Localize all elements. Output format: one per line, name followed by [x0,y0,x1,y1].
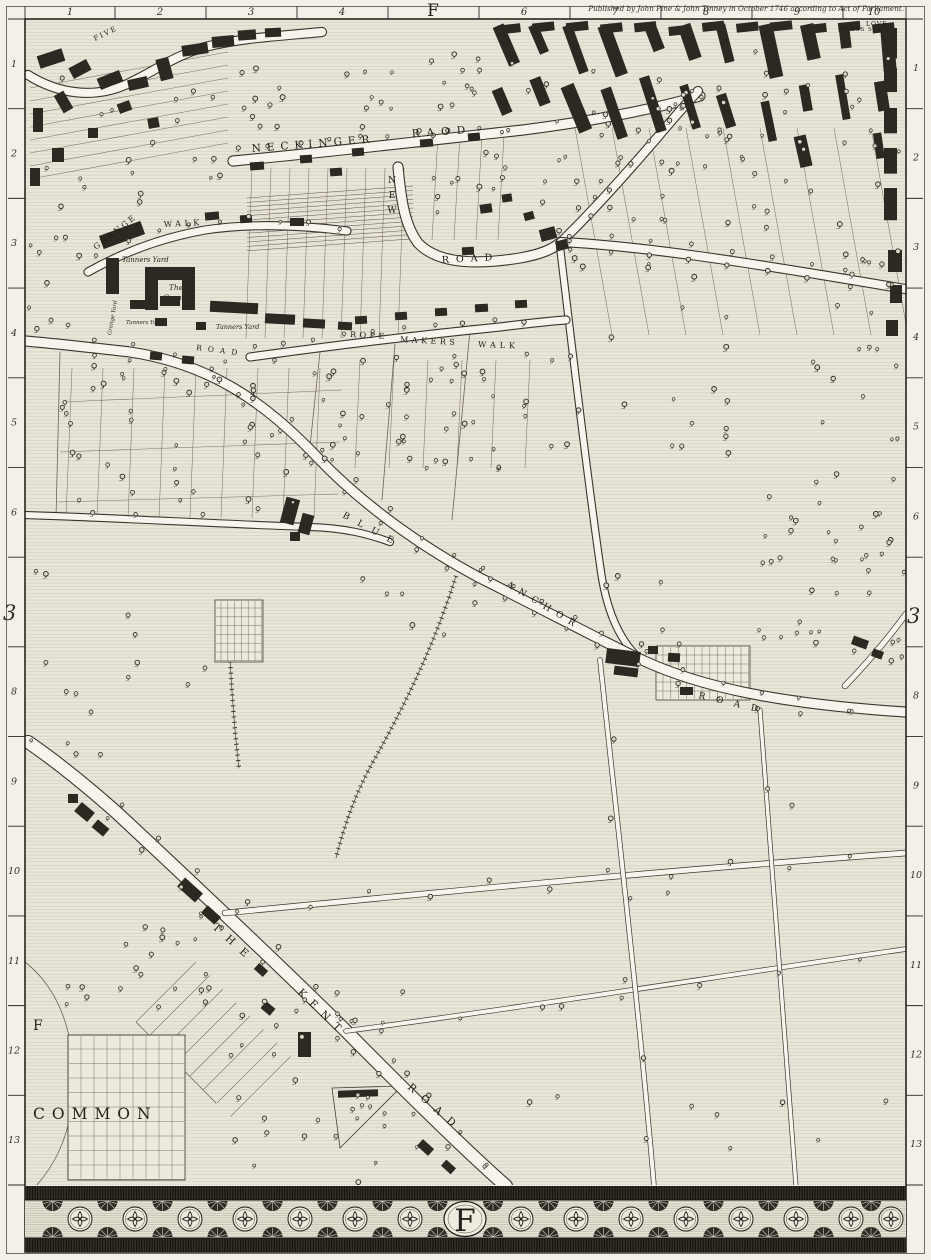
ruler-number: 11 [910,960,922,971]
ruler-number: 2 [912,153,919,164]
building [238,29,257,40]
building [212,35,235,48]
building [668,653,680,663]
rosette-ornament [343,1207,367,1231]
building [648,646,658,654]
rosette-ornament [178,1207,202,1231]
building [886,320,898,336]
rosette-ornament [564,1207,588,1231]
ruler-number: F [427,1,439,21]
ruler-number: 4 [10,328,17,339]
building [395,312,407,321]
building [250,162,265,171]
rosette-ornament [619,1207,643,1231]
section-number-right: 3 [907,604,920,628]
ruler-number: 5 [11,418,17,429]
building [479,203,492,214]
sheet-corner-letter: F [33,1018,43,1034]
building [88,128,98,138]
building [196,322,206,330]
label-the-grange-1: The [169,283,184,292]
ruler-number: 1 [913,63,919,74]
building [501,193,512,202]
label-the-grange-2: Grange [163,293,192,302]
rosette-ornament [68,1207,92,1231]
building [884,148,897,174]
building [420,138,434,147]
building [355,316,367,325]
ruler-number: 1 [11,59,17,70]
rosette-ornament [879,1207,903,1231]
rosette-ornament [288,1207,312,1231]
border-center-letter: F [454,1203,476,1239]
building [303,318,325,328]
building [205,211,220,220]
ruler-number: 8 [11,687,17,698]
ruler-number: 2 [156,7,163,18]
building [265,313,295,325]
building [884,188,897,220]
ruler-number: 6 [11,507,17,518]
ornamental-border: F [25,1186,906,1252]
ruler-number: 6 [913,511,919,522]
building [890,285,902,303]
map-canvas: NECKINGER RAOD NEW ROAD ROPE MAKERS WALK… [0,0,931,1260]
label-tanners-yard-2: Tanners Yard [126,320,163,326]
ruler-number: 3 [248,7,254,18]
building [265,28,281,38]
ruler-number: 13 [910,1139,922,1150]
rosette-ornament [839,1207,863,1231]
section-number-left: 3 [3,601,16,625]
ruler-number: 4 [912,332,919,343]
building [290,532,300,541]
garden-plot [215,600,263,662]
ruler-number: 13 [8,1135,20,1146]
ruler-number: 11 [8,956,20,967]
building [147,117,160,129]
building [33,108,43,132]
rosette-ornament [398,1207,422,1231]
label-new-road-vertical: NEW [387,176,397,221]
ruler-number: 1 [67,7,73,18]
building [330,168,343,177]
ruler-number: 10 [910,870,922,881]
building [150,351,163,360]
ruler-number: 12 [910,1049,922,1060]
building [130,300,146,309]
building [435,308,447,317]
building [145,267,158,310]
ruler-number: 9 [11,776,17,787]
map-sheet: NECKINGER RAOD NEW ROAD ROPE MAKERS WALK… [0,0,931,1260]
ruler-number: 12 [8,1045,20,1056]
rosette-ornament [674,1207,698,1231]
building [106,258,119,294]
publication-note: Published by John Pine & John Tinney in … [587,4,904,13]
building [884,68,897,92]
ruler-number: 8 [913,691,919,702]
building [182,355,195,364]
ruler-number: 4 [338,7,345,18]
ruler-number: 9 [913,780,919,791]
rosette-ornament [729,1207,753,1231]
ruler-number: 10 [8,866,20,877]
building [475,304,488,313]
building [884,28,897,58]
ruler-number: 5 [913,422,919,433]
label-love-lane: LOVE [866,21,888,28]
building [884,108,897,133]
label-tanners-yard-3: Tanners Yard [216,323,259,331]
ruler-number: 2 [10,149,17,160]
building [290,218,304,226]
label-tanners-yard-1: Tanners Yard [122,256,169,264]
rosette-ornament [233,1207,257,1231]
building [68,794,78,803]
building [352,147,365,156]
building [515,300,527,309]
label-makers-walk: WALK [478,340,519,350]
ruler-number: 6 [521,7,528,18]
building [30,168,40,186]
label-common: COMMON [33,1105,158,1123]
ruler-number: 3 [913,242,919,253]
rosette-ornament [509,1207,533,1231]
building [680,687,693,695]
field-texture [25,19,906,1185]
border-band-bottom [25,1238,906,1252]
rosette-ornament [123,1207,147,1231]
rosette-ornament [784,1207,808,1231]
building [300,155,313,164]
ruler-number: 3 [11,238,17,249]
border-band-top [25,1186,906,1200]
building [52,148,64,162]
